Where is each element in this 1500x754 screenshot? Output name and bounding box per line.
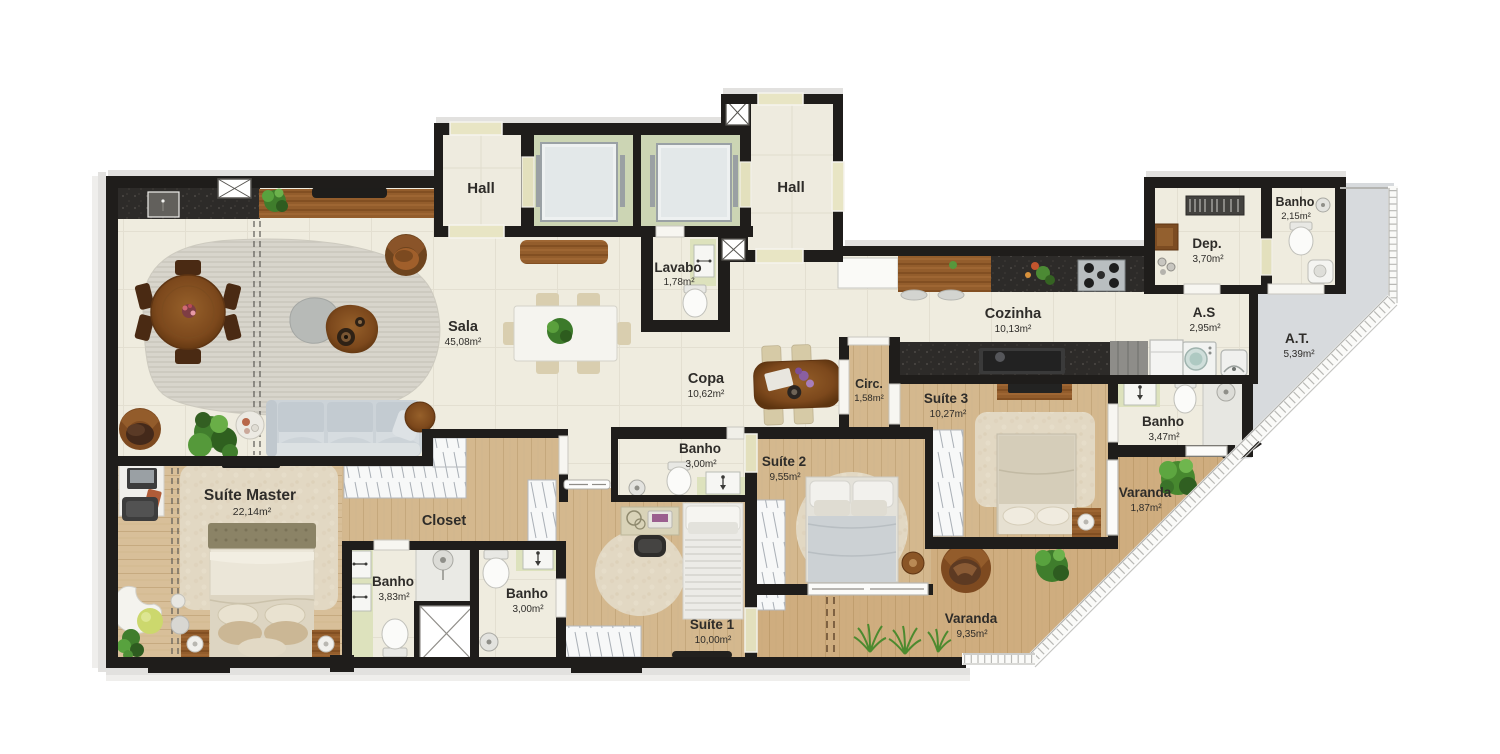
svg-text:3,70m²: 3,70m²	[1192, 254, 1224, 265]
svg-text:Banho: Banho	[1276, 195, 1315, 209]
svg-text:Lavabo: Lavabo	[654, 260, 701, 275]
svg-text:Banho: Banho	[1142, 414, 1184, 429]
svg-text:Suíte 3: Suíte 3	[924, 391, 969, 406]
svg-text:9,35m²: 9,35m²	[956, 629, 988, 640]
svg-text:1,78m²: 1,78m²	[663, 277, 695, 288]
svg-text:9,55m²: 9,55m²	[769, 472, 801, 483]
svg-text:Banho: Banho	[679, 441, 721, 456]
svg-text:3,83m²: 3,83m²	[378, 592, 410, 603]
svg-text:1,87m²: 1,87m²	[1130, 503, 1162, 514]
svg-text:2,15m²: 2,15m²	[1281, 211, 1311, 222]
svg-text:Banho: Banho	[506, 586, 548, 601]
svg-text:Hall: Hall	[777, 179, 805, 196]
svg-text:5,39m²: 5,39m²	[1283, 349, 1315, 360]
svg-text:Suíte 2: Suíte 2	[762, 454, 806, 469]
svg-text:Banho: Banho	[372, 574, 414, 589]
svg-text:Suíte Master: Suíte Master	[204, 487, 296, 504]
svg-text:10,00m²: 10,00m²	[695, 635, 732, 646]
svg-text:A.S: A.S	[1193, 305, 1216, 320]
svg-text:3,00m²: 3,00m²	[512, 604, 544, 615]
svg-text:10,62m²: 10,62m²	[688, 389, 725, 400]
svg-text:10,27m²: 10,27m²	[930, 409, 967, 420]
svg-text:Cozinha: Cozinha	[985, 306, 1042, 322]
svg-text:Varanda: Varanda	[945, 611, 998, 626]
svg-text:Copa: Copa	[688, 371, 725, 387]
svg-text:Closet: Closet	[422, 513, 466, 529]
svg-text:1,58m²: 1,58m²	[854, 393, 884, 404]
svg-text:3,47m²: 3,47m²	[1148, 432, 1180, 443]
svg-text:10,13m²: 10,13m²	[995, 324, 1032, 335]
svg-text:Suíte 1: Suíte 1	[690, 617, 735, 632]
svg-text:Hall: Hall	[467, 180, 495, 197]
svg-text:Dep.: Dep.	[1192, 236, 1221, 251]
svg-text:2,95m²: 2,95m²	[1189, 323, 1221, 334]
svg-text:A.T.: A.T.	[1285, 331, 1309, 346]
svg-text:45,08m²: 45,08m²	[445, 337, 482, 348]
svg-text:3,00m²: 3,00m²	[685, 459, 717, 470]
svg-text:22,14m²: 22,14m²	[233, 506, 272, 518]
svg-text:Circ.: Circ.	[855, 377, 883, 391]
svg-text:Sala: Sala	[448, 319, 479, 335]
svg-text:Varanda: Varanda	[1119, 485, 1172, 500]
